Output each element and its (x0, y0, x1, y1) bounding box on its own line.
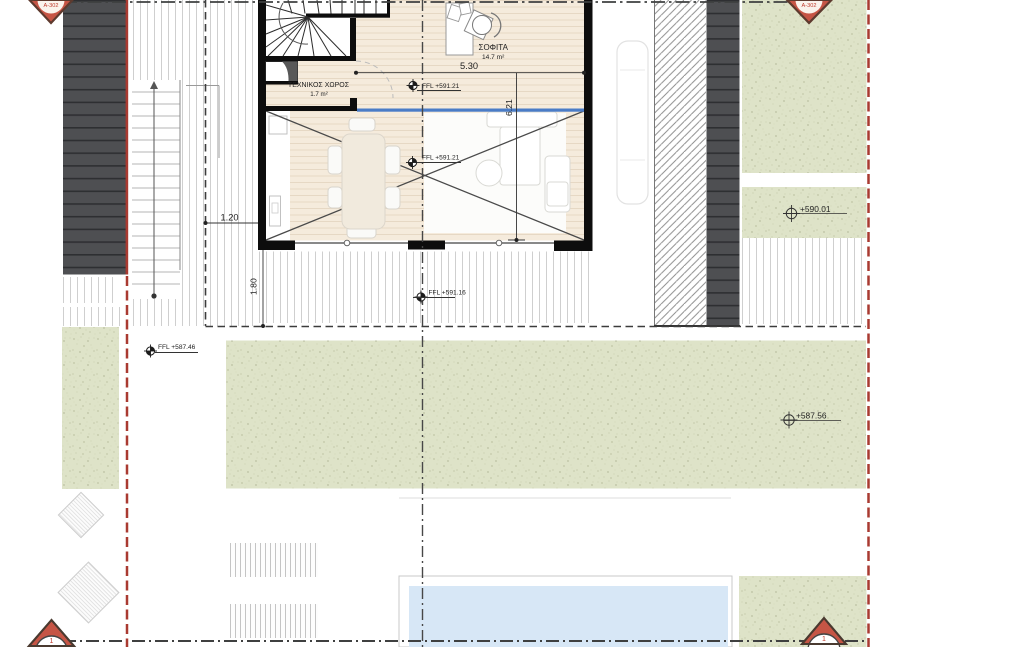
svg-text:+587.56: +587.56 (796, 411, 827, 421)
svg-text:+590.01: +590.01 (800, 204, 831, 214)
svg-text:1.20: 1.20 (221, 213, 239, 223)
svg-text:14.7 m²: 14.7 m² (482, 54, 505, 61)
svg-text:ΣΟΦΙΤΑ: ΣΟΦΙΤΑ (479, 43, 509, 52)
svg-text:5.30: 5.30 (460, 61, 478, 71)
svg-text:1: 1 (50, 638, 54, 645)
svg-text:6.21: 6.21 (504, 99, 514, 116)
svg-text:FFL +587.46: FFL +587.46 (158, 344, 196, 351)
svg-text:FFL +591.21: FFL +591.21 (422, 155, 460, 162)
svg-text:1.7 m²: 1.7 m² (310, 91, 328, 98)
svg-text:ΤΕΧΝΙΚΟΣ ΧΩΡΟΣ: ΤΕΧΝΙΚΟΣ ΧΩΡΟΣ (288, 82, 350, 89)
svg-text:FFL +591.21: FFL +591.21 (422, 83, 460, 90)
svg-text:1.80: 1.80 (249, 278, 259, 295)
svg-text:A-302: A-302 (802, 3, 817, 9)
svg-text:FFL +591.16: FFL +591.16 (429, 290, 467, 297)
svg-text:A-302: A-302 (44, 3, 59, 9)
svg-text:1: 1 (822, 636, 826, 643)
